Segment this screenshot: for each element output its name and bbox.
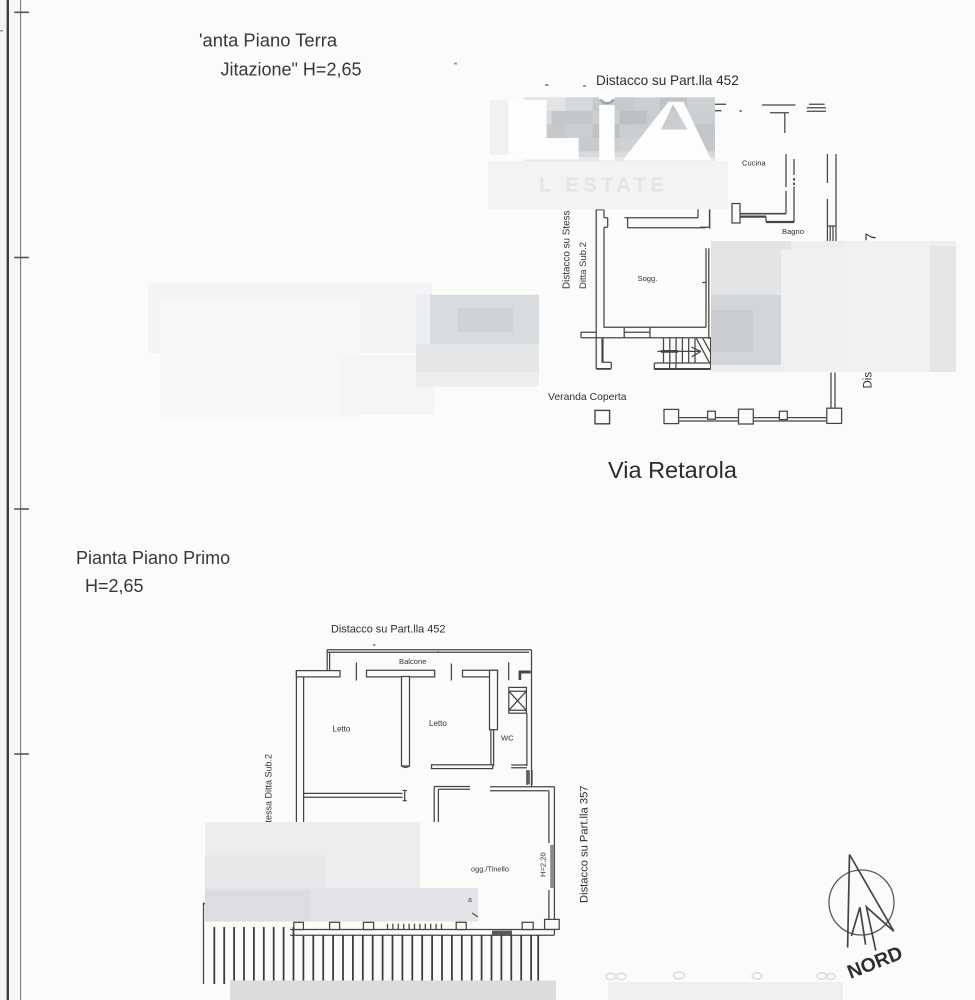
svg-text:Sogg.: Sogg. bbox=[638, 274, 658, 283]
svg-text:Distacco su Part.lla 452: Distacco su Part.lla 452 bbox=[331, 624, 445, 636]
svg-text:Ditta Sub.2: Ditta Sub.2 bbox=[578, 242, 589, 289]
svg-text:WC: WC bbox=[501, 734, 514, 743]
svg-text:Balcone: Balcone bbox=[399, 657, 426, 666]
svg-text:tessa Ditta Sub.2: tessa Ditta Sub.2 bbox=[264, 754, 274, 823]
svg-text:Distacco su Stess: Distacco su Stess bbox=[562, 210, 573, 289]
svg-text:Via Retarola: Via Retarola bbox=[608, 457, 738, 483]
svg-text:'anta Piano Terra: 'anta Piano Terra bbox=[199, 30, 338, 51]
svg-text:Distacco su Part.lla 452: Distacco su Part.lla 452 bbox=[596, 73, 739, 88]
svg-text:ogg./Tinello: ogg./Tinello bbox=[471, 865, 509, 874]
svg-text:H=2,65: H=2,65 bbox=[85, 576, 144, 596]
svg-text:Cucina: Cucina bbox=[742, 159, 766, 168]
svg-text:Distacco su Part.lla 357: Distacco su Part.lla 357 bbox=[579, 785, 591, 903]
svg-text:Bagno: Bagno bbox=[782, 227, 804, 236]
svg-text:a: a bbox=[468, 897, 472, 904]
svg-text:Letto: Letto bbox=[333, 725, 351, 734]
svg-text:Dis: Dis bbox=[863, 372, 875, 389]
svg-text:Letto: Letto bbox=[429, 719, 447, 728]
svg-text:Pianta Piano Primo: Pianta Piano Primo bbox=[76, 548, 230, 568]
svg-text:H=2,20: H=2,20 bbox=[539, 852, 548, 877]
svg-text:Jitazione" H=2,65: Jitazione" H=2,65 bbox=[221, 60, 362, 80]
svg-text:Veranda Coperta: Veranda Coperta bbox=[548, 392, 627, 403]
svg-text:7: 7 bbox=[864, 233, 880, 241]
svg-text:L ESTATE: L ESTATE bbox=[539, 175, 668, 197]
